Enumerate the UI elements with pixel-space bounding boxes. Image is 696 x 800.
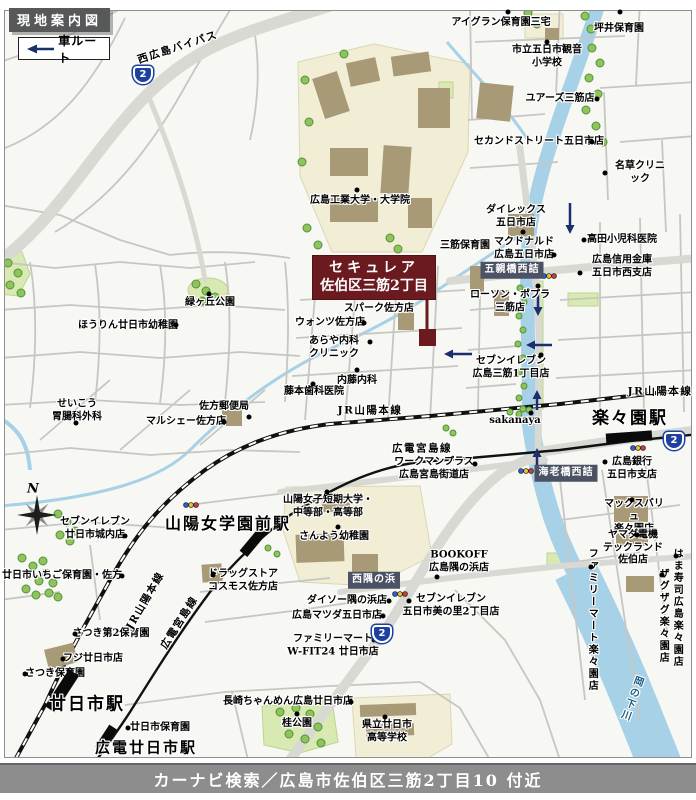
- poi-dot-marker: [123, 534, 128, 539]
- poi-dot-marker: [295, 712, 300, 717]
- poi-label: BOOKOFF 広島隅の浜店: [429, 550, 489, 575]
- poi-label: ファミリーマート楽々園店: [585, 548, 598, 692]
- poi-dot-marker: [595, 97, 600, 102]
- poi-dot-marker: [618, 10, 623, 15]
- poi-dot-marker: [368, 340, 373, 345]
- poi-label: 広島信用金庫 五日市西支店: [592, 255, 652, 280]
- poi-dot-marker: [578, 271, 583, 276]
- compass-north-label: N: [27, 482, 39, 497]
- car-route-label: 車ルート: [58, 32, 103, 66]
- poi-dot-marker: [61, 657, 66, 662]
- site-address: 佐伯区三筋2丁目: [313, 277, 435, 295]
- poi-dot-marker: [355, 188, 360, 193]
- poi-label: スパーク佐方店: [344, 303, 414, 316]
- poi-label: セブンイレブン 五日市美の里2丁目店: [403, 594, 500, 619]
- route-2-shield: 2: [133, 66, 153, 84]
- poi-dot-marker: [387, 599, 392, 604]
- poi-dot-marker: [521, 230, 526, 235]
- poi-label: ワークマンプラス 広島宮島街道店: [394, 457, 474, 482]
- poi-dot-marker: [582, 238, 587, 243]
- poi-label: 坪井保育園: [594, 23, 644, 36]
- poi-label: はま寿司広島楽々園店: [670, 548, 683, 668]
- poi-label: ダイレックス 五日市店: [486, 205, 546, 230]
- poi-label: フジ廿日市店: [63, 653, 123, 666]
- poi-label: セブンイレブン 廿日市城内店: [60, 517, 130, 542]
- label-layer: アイグラン保育園三宅坪井保育園市立五日市観音 小学校ユアーズ三筋店セカンドストリ…: [0, 0, 696, 760]
- poi-dot-marker: [349, 700, 354, 705]
- site-label: セキュレア 佐伯区三筋2丁目: [312, 255, 436, 300]
- car-navi-caption: カーナビ検索／広島市佐伯区三筋2丁目10 付近: [0, 763, 696, 793]
- poi-label: マクドナルド 広島五日市店: [494, 237, 554, 262]
- car-route-arrow-icon: [25, 43, 54, 55]
- railway-label: 広電宮島線: [392, 442, 452, 455]
- poi-label: あらや内科 クリニック: [309, 336, 359, 361]
- poi-label: 広島マツダ五日市店: [292, 610, 382, 623]
- railway-label: JR山陽本線: [628, 385, 693, 398]
- car-route-legend: 車ルート: [18, 37, 110, 60]
- poi-label: sakanaya: [489, 415, 541, 428]
- poi-label: さんよう幼稚園: [299, 531, 369, 544]
- poi-label: 広島銀行 五日市支店: [607, 457, 657, 482]
- poi-label: ほうりん廿日市幼稚園: [78, 320, 178, 333]
- intersection-badge: 西隅の浜: [348, 572, 400, 589]
- poi-dot-marker: [211, 573, 216, 578]
- poi-dot-marker: [336, 525, 341, 530]
- poi-label: マルシェー佐方店: [146, 416, 226, 429]
- poi-label: 高田小児科医院: [587, 234, 657, 247]
- poi-dot-marker: [589, 565, 594, 570]
- poi-dot-marker: [120, 574, 125, 579]
- poi-dot-marker: [355, 368, 360, 373]
- poi-dot-marker: [174, 323, 179, 328]
- page-title: 現地案内図: [9, 8, 110, 32]
- railway-label: 広電宮島線: [159, 594, 202, 652]
- poi-dot-marker: [73, 632, 78, 637]
- route-2-shield: 2: [664, 432, 684, 450]
- poi-label: セブンイレブン 広島三筋1丁目店: [473, 356, 550, 381]
- poi-dot-marker: [222, 420, 227, 425]
- poi-label: 藤本歯科医院: [284, 386, 344, 399]
- poi-dot-marker: [552, 253, 557, 258]
- poi-label: 県立廿日市 高等学校: [362, 720, 412, 745]
- poi-label: ザグザグ楽々園店: [656, 568, 669, 664]
- poi-label: ドラッグストア コスモス佐方店: [208, 569, 278, 594]
- poi-label: 緑ヶ丘公園: [185, 297, 235, 310]
- poi-dot-marker: [362, 321, 367, 326]
- route-2-shield: 2: [372, 625, 392, 643]
- intersection-badge: 五親橋西詰: [481, 262, 544, 279]
- poi-dot-marker: [435, 575, 440, 580]
- poi-dot-marker: [207, 292, 212, 297]
- poi-label: ウォンツ佐方店: [295, 317, 365, 330]
- poi-dot-marker: [635, 533, 640, 538]
- station-label: 広電廿日市駅: [95, 739, 197, 758]
- poi-label: ローソン・ポプラ 三筋店: [470, 290, 550, 315]
- station-marker: [606, 430, 653, 443]
- poi-label: 佐方郵便局: [199, 401, 249, 414]
- poi-dot-marker: [311, 382, 316, 387]
- poi-dot-marker: [383, 715, 388, 720]
- poi-dot-marker: [545, 40, 550, 45]
- poi-dot-marker: [74, 421, 79, 426]
- poi-dot-marker: [381, 614, 386, 619]
- intersection-badge: 海老橋西詰: [535, 465, 598, 482]
- poi-dot-marker: [590, 140, 595, 145]
- poi-dot-marker: [603, 460, 608, 465]
- poi-dot-marker: [539, 353, 544, 358]
- poi-dot-marker: [247, 415, 252, 420]
- poi-dot-marker: [407, 599, 412, 604]
- poi-dot-marker: [325, 490, 330, 495]
- poi-label: ダイソー隅の浜店: [307, 595, 387, 608]
- poi-dot-marker: [473, 462, 478, 467]
- poi-label: アイグラン保育園三宅: [451, 17, 550, 30]
- site-name: セキュレア: [313, 259, 435, 277]
- poi-dot-marker: [603, 171, 608, 176]
- station-label: 廿日市駅: [49, 694, 125, 715]
- poi-label: 廿日市いちご保育園・佐方: [2, 570, 122, 583]
- poi-dot-marker: [506, 10, 511, 15]
- poi-label: 市立五日市観音 小学校: [512, 45, 582, 70]
- compass-icon: [14, 492, 60, 538]
- poi-dot-marker: [660, 573, 665, 578]
- station-label: 楽々園駅: [592, 408, 668, 429]
- poi-label: 三筋保育園: [440, 240, 490, 253]
- poi-dot-marker: [23, 672, 28, 677]
- poi-dot-marker: [529, 411, 534, 416]
- poi-label: 広島工業大学・大学院: [310, 195, 410, 208]
- poi-dot-marker: [674, 554, 679, 559]
- road-label: 西広島バイパス: [136, 29, 220, 67]
- poi-label: さつき第2保育園: [73, 628, 150, 641]
- poi-label: 長崎ちゃんめん広島廿日市店: [223, 696, 353, 709]
- poi-label: 名草クリニック: [612, 161, 668, 186]
- poi-dot-marker: [126, 726, 131, 731]
- railway-label: JR山陽本線: [338, 404, 403, 417]
- poi-label: 桂公園: [282, 718, 312, 731]
- poi-label: 山陽女子短期大学・ 中等部・高等部: [283, 495, 373, 520]
- poi-dot-marker: [630, 498, 635, 503]
- poi-label: 廿日市保育園: [130, 722, 190, 735]
- railway-label: JR山陽本線: [124, 570, 168, 633]
- poi-label: セカンドストリート五日市店: [474, 136, 604, 149]
- poi-dot-marker: [536, 284, 541, 289]
- station-label: 山陽女学園前駅: [165, 514, 291, 534]
- river-label: 岡の下川: [616, 673, 644, 722]
- poi-label: ユアーズ三筋店: [526, 93, 595, 106]
- poi-label: ヤマダ電機 テックランド佐伯店: [602, 529, 665, 567]
- poi-label: ファミリーマート W-FIT24 廿日市店: [287, 634, 378, 659]
